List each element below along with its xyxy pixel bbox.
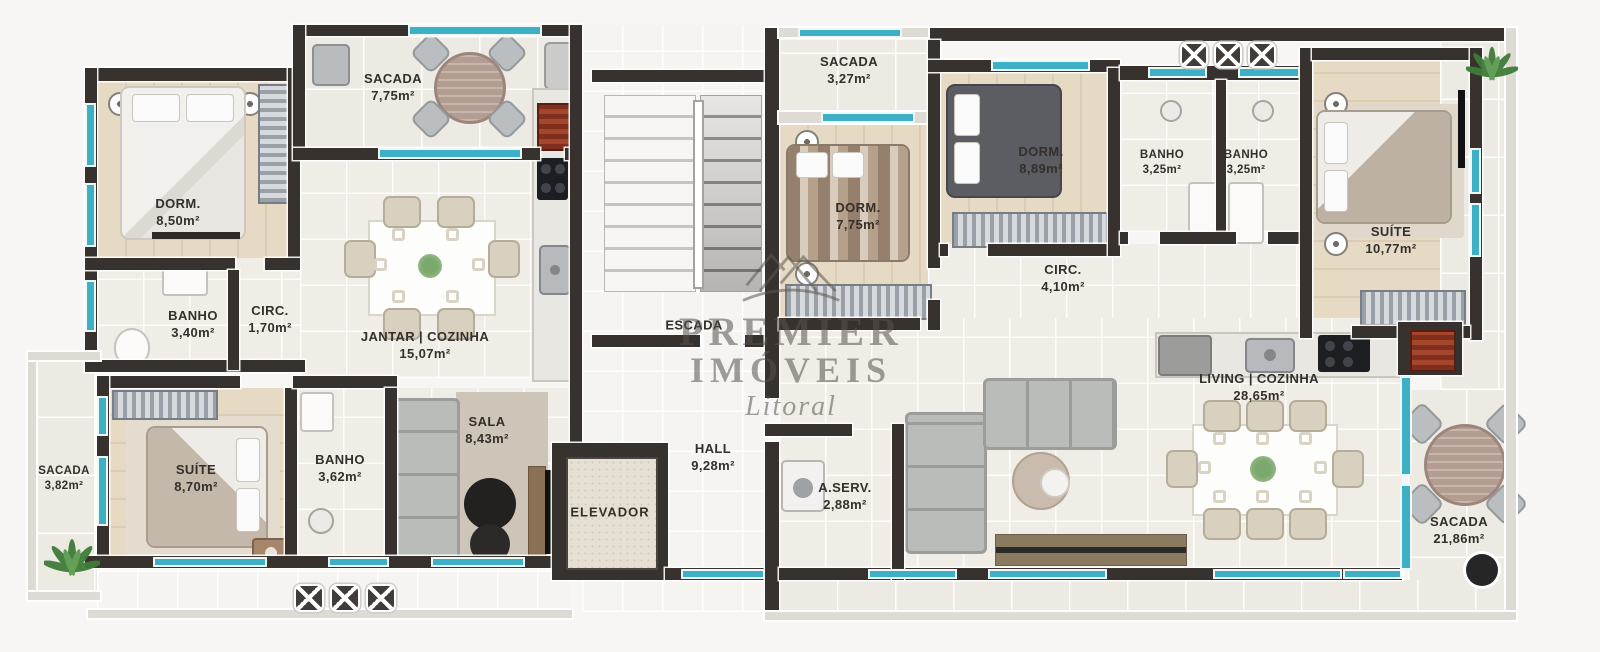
wall [85, 360, 305, 372]
balcony-rail [28, 352, 36, 600]
room-name: ESCADA [665, 318, 722, 335]
room-label-suite-left: SUÍTE 8,70m² [174, 462, 218, 496]
cooktop-icon [537, 158, 568, 200]
room-label-banho1-right: BANHO 3,25m² [1140, 148, 1184, 178]
floor-plan-canvas: SACADA 7,75m² DORM. 8,50m² BANHO 3,40m² … [0, 0, 1600, 652]
wall [1312, 48, 1482, 60]
ceiling-light-icon [795, 262, 819, 286]
room-name: SACADA [1430, 514, 1488, 531]
wall [988, 244, 1108, 256]
wall [1160, 232, 1236, 244]
wall [765, 442, 779, 616]
side-table-icon [1040, 468, 1070, 498]
centerpiece-icon [418, 254, 442, 278]
room-name: SUÍTE [174, 462, 218, 479]
room-name: SALA [465, 414, 509, 431]
wall [293, 376, 397, 388]
window [330, 559, 387, 565]
room-area: 1,70m² [248, 320, 292, 337]
room-name: BANHO [1224, 148, 1268, 163]
chair [1332, 450, 1364, 488]
sofa-left [392, 398, 460, 562]
room-name: JANTAR | COZINHA [361, 329, 489, 346]
plate-icon [1256, 490, 1269, 503]
coffee-table-icon [464, 478, 516, 530]
window [1150, 69, 1205, 76]
room-label-circ-right: CIRC. 4,10m² [1041, 262, 1085, 296]
window [990, 571, 1105, 577]
grill-icon [537, 103, 572, 151]
chair [1246, 508, 1284, 540]
wall [1120, 232, 1128, 244]
room-label-sala: SALA 8,43m² [465, 414, 509, 448]
window [433, 559, 523, 565]
room-label-living: LIVING | COZINHA 28,65m² [1199, 371, 1319, 405]
tv-icon [1458, 90, 1465, 168]
wall [293, 25, 305, 148]
sofa-right-vertical [905, 412, 987, 554]
chair [344, 240, 376, 278]
window [823, 114, 913, 121]
wall [928, 28, 1516, 41]
room-name: SACADA [364, 71, 422, 88]
room-area: 8,89m² [1018, 161, 1063, 178]
room-label-circ-left: CIRC. 1,70m² [248, 303, 292, 337]
wall [928, 300, 940, 330]
room-area: 8,43m² [465, 431, 509, 448]
room-name: HALL [691, 441, 735, 458]
window [1240, 69, 1298, 76]
room-name: DORM. [1018, 144, 1063, 161]
bed-bench [152, 232, 240, 239]
window [380, 150, 520, 157]
room-area: 8,50m² [155, 213, 200, 230]
closet [112, 390, 218, 420]
pillow [954, 94, 980, 136]
room-label-elevador: ELEVADOR [570, 505, 649, 522]
room-area: 9,28m² [691, 458, 735, 475]
vent-fan-icon [1216, 44, 1240, 66]
room-name: DORM. [835, 200, 880, 217]
chair [437, 196, 475, 228]
sink-icon [1245, 338, 1295, 373]
room-label-escada: ESCADA [665, 318, 722, 335]
plate-icon [1299, 432, 1312, 445]
room-name: LIVING | COZINHA [1199, 371, 1319, 388]
cooktop-icon [1318, 335, 1370, 372]
room-label-sacada-right: SACADA 21,86m² [1430, 514, 1488, 548]
pillow [236, 488, 260, 532]
balcony-rail [28, 352, 100, 360]
pillow [954, 142, 980, 184]
pillow [186, 94, 234, 122]
room-area: 7,75m² [364, 88, 422, 105]
plate-icon [1213, 432, 1226, 445]
window [87, 185, 94, 245]
window [155, 559, 265, 565]
sink-icon [539, 245, 571, 295]
chair [383, 196, 421, 228]
room-area: 10,77m² [1365, 241, 1416, 258]
room-name: BANHO [1140, 148, 1184, 163]
plate-icon [392, 228, 405, 241]
plate-icon [392, 290, 405, 303]
window-glass-wall [1402, 486, 1410, 568]
plate-icon [1314, 461, 1327, 474]
window [99, 398, 106, 434]
window [1215, 571, 1340, 577]
wall [1108, 68, 1120, 256]
wall [385, 388, 397, 556]
plate-icon [446, 228, 459, 241]
wall [928, 40, 940, 268]
window [87, 282, 94, 330]
staircase-divider [693, 100, 704, 289]
staircase-right-flight [700, 95, 762, 292]
plate-icon [472, 258, 485, 271]
room-area: 3,25m² [1224, 163, 1268, 178]
shower-drain-icon [1160, 100, 1182, 122]
plate-icon [1256, 432, 1269, 445]
window [87, 105, 94, 165]
pillow [796, 152, 828, 178]
shower-drain-icon [1252, 100, 1274, 122]
centerpiece-icon [1250, 456, 1276, 482]
vent-fan-icon [368, 586, 394, 610]
room-area: 21,86m² [1430, 531, 1488, 548]
room-name: SACADA [38, 464, 90, 479]
pillow [132, 94, 180, 122]
plant-icon [1466, 44, 1518, 110]
vent-fan-icon [296, 586, 322, 610]
plate-icon [1299, 490, 1312, 503]
room-area: 4,10m² [1041, 279, 1085, 296]
room-label-sacada-left: SACADA 3,82m² [38, 464, 90, 494]
ac-unit-icon [312, 44, 350, 86]
wall [285, 388, 297, 556]
wall [940, 244, 948, 256]
vent-fan-icon [332, 586, 358, 610]
chair [1203, 508, 1241, 540]
plate-icon [374, 258, 387, 271]
floor-walkway-right [779, 580, 1516, 616]
room-label-jantar: JANTAR | COZINHA 15,07m² [361, 329, 489, 363]
chair [1289, 508, 1327, 540]
plant-icon [44, 536, 100, 608]
sofa-right-horizontal [983, 378, 1117, 450]
room-label-banho-top-left: BANHO 3,40m² [168, 308, 218, 342]
wall [228, 270, 239, 370]
wall [85, 258, 235, 270]
kitchen-cabinet [1158, 335, 1212, 376]
closet [952, 212, 1108, 248]
wall [1300, 48, 1312, 338]
bathroom-vanity-icon [300, 392, 334, 432]
room-label-aserv: A.SERV. 2,88m² [818, 480, 871, 514]
room-area: 2,88m² [818, 497, 871, 514]
closet [785, 284, 932, 320]
vent-fan-icon [1250, 44, 1274, 66]
closet [258, 84, 290, 204]
plate-icon [1213, 490, 1226, 503]
window [410, 27, 540, 34]
balcony-rail [765, 612, 1516, 620]
window-glass-wall [1402, 378, 1410, 474]
wall [97, 376, 240, 388]
wall [779, 318, 920, 330]
room-name: BANHO [315, 452, 365, 469]
pillow [236, 438, 260, 482]
plate-icon [446, 290, 459, 303]
window [99, 458, 106, 524]
room-name: A.SERV. [818, 480, 871, 497]
pillow [1324, 122, 1348, 164]
closet [1360, 290, 1466, 326]
tv-console [528, 466, 546, 560]
wall [892, 424, 904, 580]
room-area: 3,62m² [315, 469, 365, 486]
chair [488, 240, 520, 278]
room-label-dorm1-right: DORM. 7,75m² [835, 200, 880, 234]
window [1472, 205, 1479, 255]
room-area: 15,07m² [361, 346, 489, 363]
room-area: 3,25m² [1140, 163, 1184, 178]
room-name: ELEVADOR [570, 505, 649, 522]
staircase-left-flight [604, 95, 696, 292]
pillow [1324, 170, 1348, 212]
wall [592, 335, 700, 347]
room-area: 3,27m² [820, 71, 878, 88]
wall [765, 28, 779, 398]
room-name: DORM. [155, 196, 200, 213]
window [1472, 150, 1479, 192]
room-label-dorm-left: DORM. 8,50m² [155, 196, 200, 230]
wall [592, 70, 768, 82]
window [870, 571, 955, 577]
room-name: CIRC. [1041, 262, 1085, 279]
room-label-hall: HALL 9,28m² [691, 441, 735, 475]
balcony-rail [1506, 28, 1516, 620]
room-area: 3,40m² [168, 325, 218, 342]
tv-console [995, 534, 1187, 566]
balcony-rail [88, 610, 572, 618]
window [683, 571, 763, 577]
window [800, 30, 900, 36]
window [993, 62, 1088, 69]
fire-bowl-icon [1466, 554, 1498, 586]
room-area: 8,70m² [174, 479, 218, 496]
room-label-banho-bottom-left: BANHO 3,62m² [315, 452, 365, 486]
shower-drain-icon [308, 508, 334, 534]
room-area: 28,65m² [1199, 388, 1319, 405]
vent-fan-icon [1182, 44, 1206, 66]
room-label-sacada-top-left: SACADA 7,75m² [364, 71, 422, 105]
tv-icon [545, 470, 552, 554]
room-area: 7,75m² [835, 217, 880, 234]
bed-dorm2 [948, 86, 1060, 196]
plate-icon [1198, 461, 1211, 474]
wall [85, 68, 300, 81]
room-name: SUÍTE [1365, 224, 1416, 241]
room-name: BANHO [168, 308, 218, 325]
room-area: 3,82m² [38, 479, 90, 494]
pillow [832, 152, 864, 178]
room-label-suite-right: SUÍTE 10,77m² [1365, 224, 1416, 258]
room-name: SACADA [820, 54, 878, 71]
wall [765, 424, 852, 436]
window [1345, 571, 1400, 577]
grill-icon [1410, 330, 1456, 372]
room-name: CIRC. [248, 303, 292, 320]
room-label-banho2-right: BANHO 3,25m² [1224, 148, 1268, 178]
wall [265, 258, 300, 270]
chair [1166, 450, 1198, 488]
room-label-sacada-top-right: SACADA 3,27m² [820, 54, 878, 88]
ceiling-light-icon [1324, 232, 1348, 256]
room-label-dorm2-right: DORM. 8,89m² [1018, 144, 1063, 178]
bed-suite-right [1318, 112, 1450, 222]
